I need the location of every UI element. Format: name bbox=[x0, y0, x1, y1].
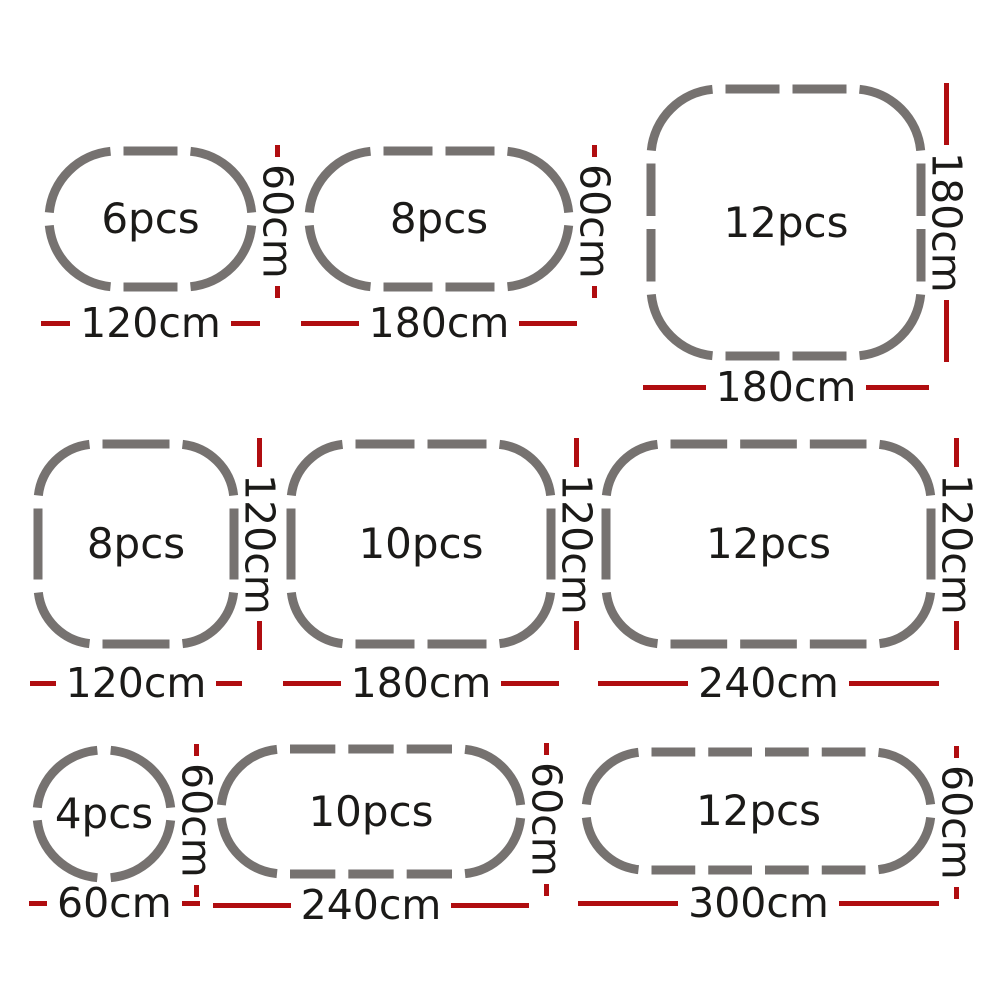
playpen-shape: 10pcs bbox=[285, 438, 557, 650]
width-label: 300cm bbox=[688, 883, 829, 924]
dimension-line-left bbox=[29, 901, 47, 906]
width-label: 240cm bbox=[698, 663, 839, 704]
pieces-label: 8pcs bbox=[32, 438, 240, 650]
dimension-line-top bbox=[194, 744, 199, 756]
playpen-shape: 10pcs bbox=[215, 743, 527, 880]
dimension-line-bottom bbox=[275, 286, 280, 298]
dimension-line-left bbox=[283, 681, 341, 686]
height-dimension: 60cm bbox=[523, 743, 569, 880]
width-label: 60cm bbox=[57, 883, 172, 924]
height-dimension: 60cm bbox=[933, 746, 979, 876]
dimension-line-right bbox=[231, 321, 260, 326]
width-label: 180cm bbox=[716, 367, 857, 408]
height-label: 120cm bbox=[556, 474, 597, 615]
dimension-line-left bbox=[301, 321, 359, 326]
height-dimension: 120cm bbox=[236, 438, 282, 650]
playpen-shape: 12pcs bbox=[580, 746, 937, 876]
dimension-line-bottom bbox=[257, 621, 262, 650]
dimension-line-bottom bbox=[194, 885, 199, 897]
height-label: 60cm bbox=[574, 164, 615, 279]
width-dimension: 120cm bbox=[30, 660, 242, 706]
playpen-shape: 6pcs bbox=[43, 145, 258, 293]
height-dimension: 60cm bbox=[254, 145, 300, 293]
height-dimension: 120cm bbox=[553, 438, 599, 650]
dimension-line-right bbox=[216, 681, 242, 686]
width-label: 180cm bbox=[369, 303, 510, 344]
playpen-shape: 12pcs bbox=[645, 83, 927, 362]
width-dimension: 120cm bbox=[41, 300, 260, 346]
dimension-line-top bbox=[954, 746, 959, 758]
width-label: 120cm bbox=[66, 663, 207, 704]
height-dimension: 180cm bbox=[923, 83, 969, 362]
height-label: 180cm bbox=[926, 152, 967, 293]
height-label: 60cm bbox=[936, 765, 977, 880]
playpen-shape: 4pcs bbox=[31, 744, 177, 884]
height-dimension: 60cm bbox=[571, 145, 617, 293]
dimension-line-bottom bbox=[954, 887, 959, 899]
dimension-line-right bbox=[849, 681, 939, 686]
width-label: 180cm bbox=[351, 663, 492, 704]
dimension-line-right bbox=[501, 681, 559, 686]
pieces-label: 12pcs bbox=[580, 746, 937, 876]
dimension-line-bottom bbox=[954, 621, 959, 650]
pieces-label: 6pcs bbox=[43, 145, 258, 293]
height-label: 60cm bbox=[526, 762, 567, 877]
width-dimension: 240cm bbox=[213, 882, 529, 928]
dimension-line-right bbox=[839, 901, 939, 906]
dimension-line-left bbox=[30, 681, 56, 686]
width-label: 120cm bbox=[80, 303, 221, 344]
dimension-line-right bbox=[519, 321, 577, 326]
pieces-label: 8pcs bbox=[303, 145, 575, 293]
dimension-line-top bbox=[954, 438, 959, 467]
dimension-line-top bbox=[275, 145, 280, 157]
dimension-line-right bbox=[451, 903, 529, 908]
width-label: 240cm bbox=[301, 885, 442, 926]
pieces-label: 12pcs bbox=[600, 438, 937, 650]
width-dimension: 180cm bbox=[283, 660, 559, 706]
dimension-line-top bbox=[944, 83, 949, 145]
width-dimension: 300cm bbox=[578, 880, 939, 926]
dimension-line-bottom bbox=[574, 621, 579, 650]
pieces-label: 10pcs bbox=[215, 743, 527, 880]
height-label: 120cm bbox=[239, 474, 280, 615]
dimension-line-top bbox=[257, 438, 262, 467]
dimension-line-left bbox=[598, 681, 688, 686]
dimension-line-left bbox=[643, 385, 706, 390]
playpen-shape: 12pcs bbox=[600, 438, 937, 650]
dimension-line-top bbox=[574, 438, 579, 467]
dimension-line-bottom bbox=[944, 300, 949, 362]
playpen-size-diagram: 6pcs 120cm 60cm 8pcs 180cm 60cm bbox=[0, 0, 1000, 1000]
dimension-line-right bbox=[182, 901, 200, 906]
width-dimension: 60cm bbox=[29, 880, 179, 926]
width-dimension: 180cm bbox=[643, 364, 929, 410]
height-dimension: 60cm bbox=[173, 744, 219, 884]
dimension-line-top bbox=[592, 145, 597, 157]
height-label: 60cm bbox=[257, 164, 298, 279]
pieces-label: 4pcs bbox=[31, 744, 177, 884]
playpen-shape: 8pcs bbox=[303, 145, 575, 293]
width-dimension: 240cm bbox=[598, 660, 939, 706]
dimension-line-bottom bbox=[544, 884, 549, 896]
height-label: 60cm bbox=[176, 763, 217, 878]
dimension-line-top bbox=[544, 743, 549, 755]
height-label: 120cm bbox=[936, 474, 977, 615]
width-dimension: 180cm bbox=[301, 300, 577, 346]
dimension-line-left bbox=[41, 321, 70, 326]
dimension-line-left bbox=[578, 901, 678, 906]
dimension-line-bottom bbox=[592, 286, 597, 298]
dimension-line-left bbox=[213, 903, 291, 908]
dimension-line-right bbox=[866, 385, 929, 390]
height-dimension: 120cm bbox=[933, 438, 979, 650]
pieces-label: 12pcs bbox=[645, 83, 927, 362]
pieces-label: 10pcs bbox=[285, 438, 557, 650]
playpen-shape: 8pcs bbox=[32, 438, 240, 650]
